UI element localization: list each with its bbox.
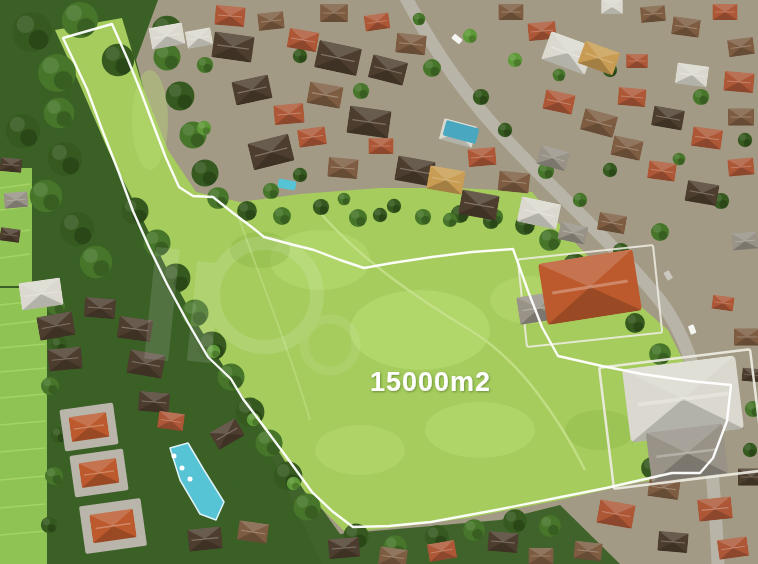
aerial-photo: 15000m2 (0, 0, 758, 564)
pool-umbrella (180, 466, 185, 471)
aerial-photo-canvas: 15000m2 (0, 0, 758, 564)
orange-villa (79, 498, 147, 554)
pool-umbrella (172, 454, 177, 459)
area-size-label: 15000m2 (370, 367, 491, 397)
orange-villa (69, 448, 128, 497)
pool-umbrella (188, 477, 193, 482)
orange-villa (59, 402, 118, 451)
